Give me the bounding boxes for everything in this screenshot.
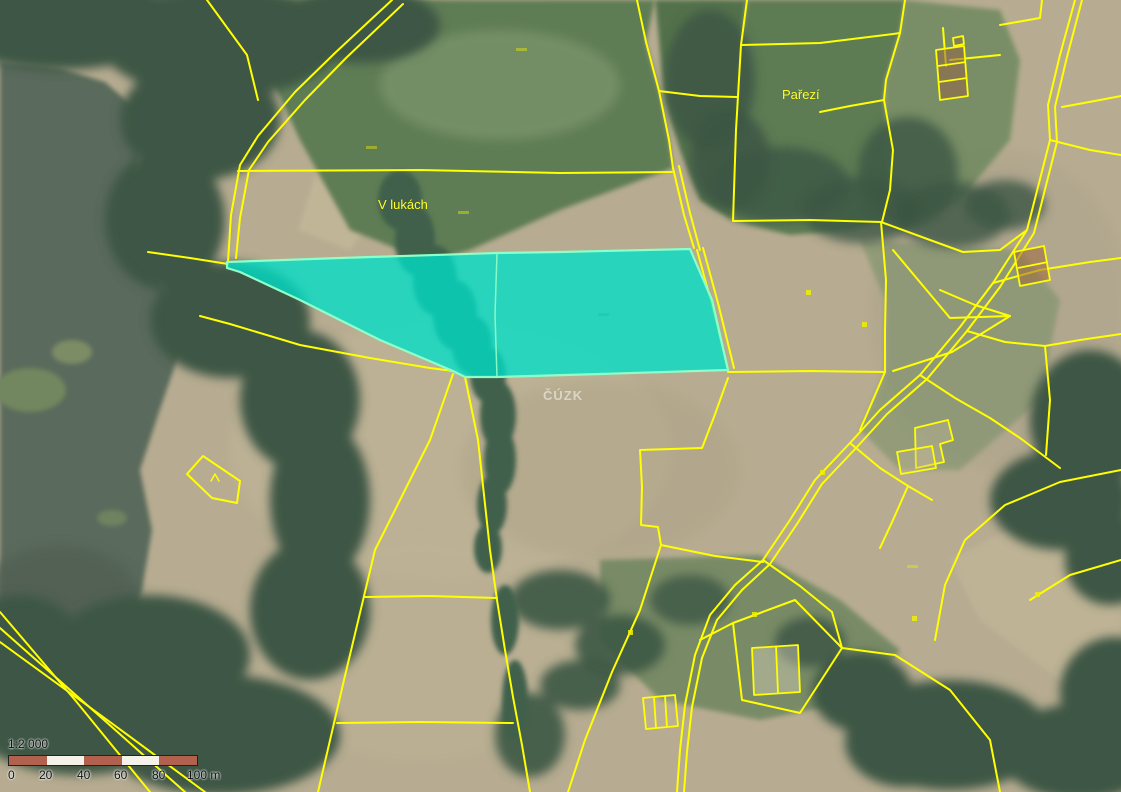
scale-ratio-label: 1:2 000 (8, 737, 238, 751)
scale-segment (84, 756, 122, 765)
scale-tick-60: 60 (114, 768, 127, 782)
settlement-label: Pařezí (782, 88, 820, 101)
locality-label: V lukách (378, 198, 428, 211)
scale-tick-100: 100 m (187, 768, 220, 782)
scale-tick-40: 40 (77, 768, 90, 782)
highlighted-parcel-right[interactable] (497, 249, 728, 377)
scale-tick-labels: 0 20 40 60 80 100 m (8, 768, 238, 783)
scale-segment (159, 756, 197, 765)
scale-segment (47, 756, 85, 765)
cuzk-watermark: ČÚZK (543, 388, 583, 403)
scale-segment (9, 756, 47, 765)
scale-tick-20: 20 (39, 768, 52, 782)
scale-segment (122, 756, 160, 765)
scale-bar-segments (8, 755, 198, 766)
cadastral-map-viewport[interactable]: Pařezí V lukách ČÚZK 1:2 000 0 20 40 60 … (0, 0, 1121, 792)
scale-tick-0: 0 (8, 768, 15, 782)
scale-tick-80: 80 (152, 768, 165, 782)
scale-bar: 1:2 000 0 20 40 60 80 100 m (8, 737, 238, 783)
